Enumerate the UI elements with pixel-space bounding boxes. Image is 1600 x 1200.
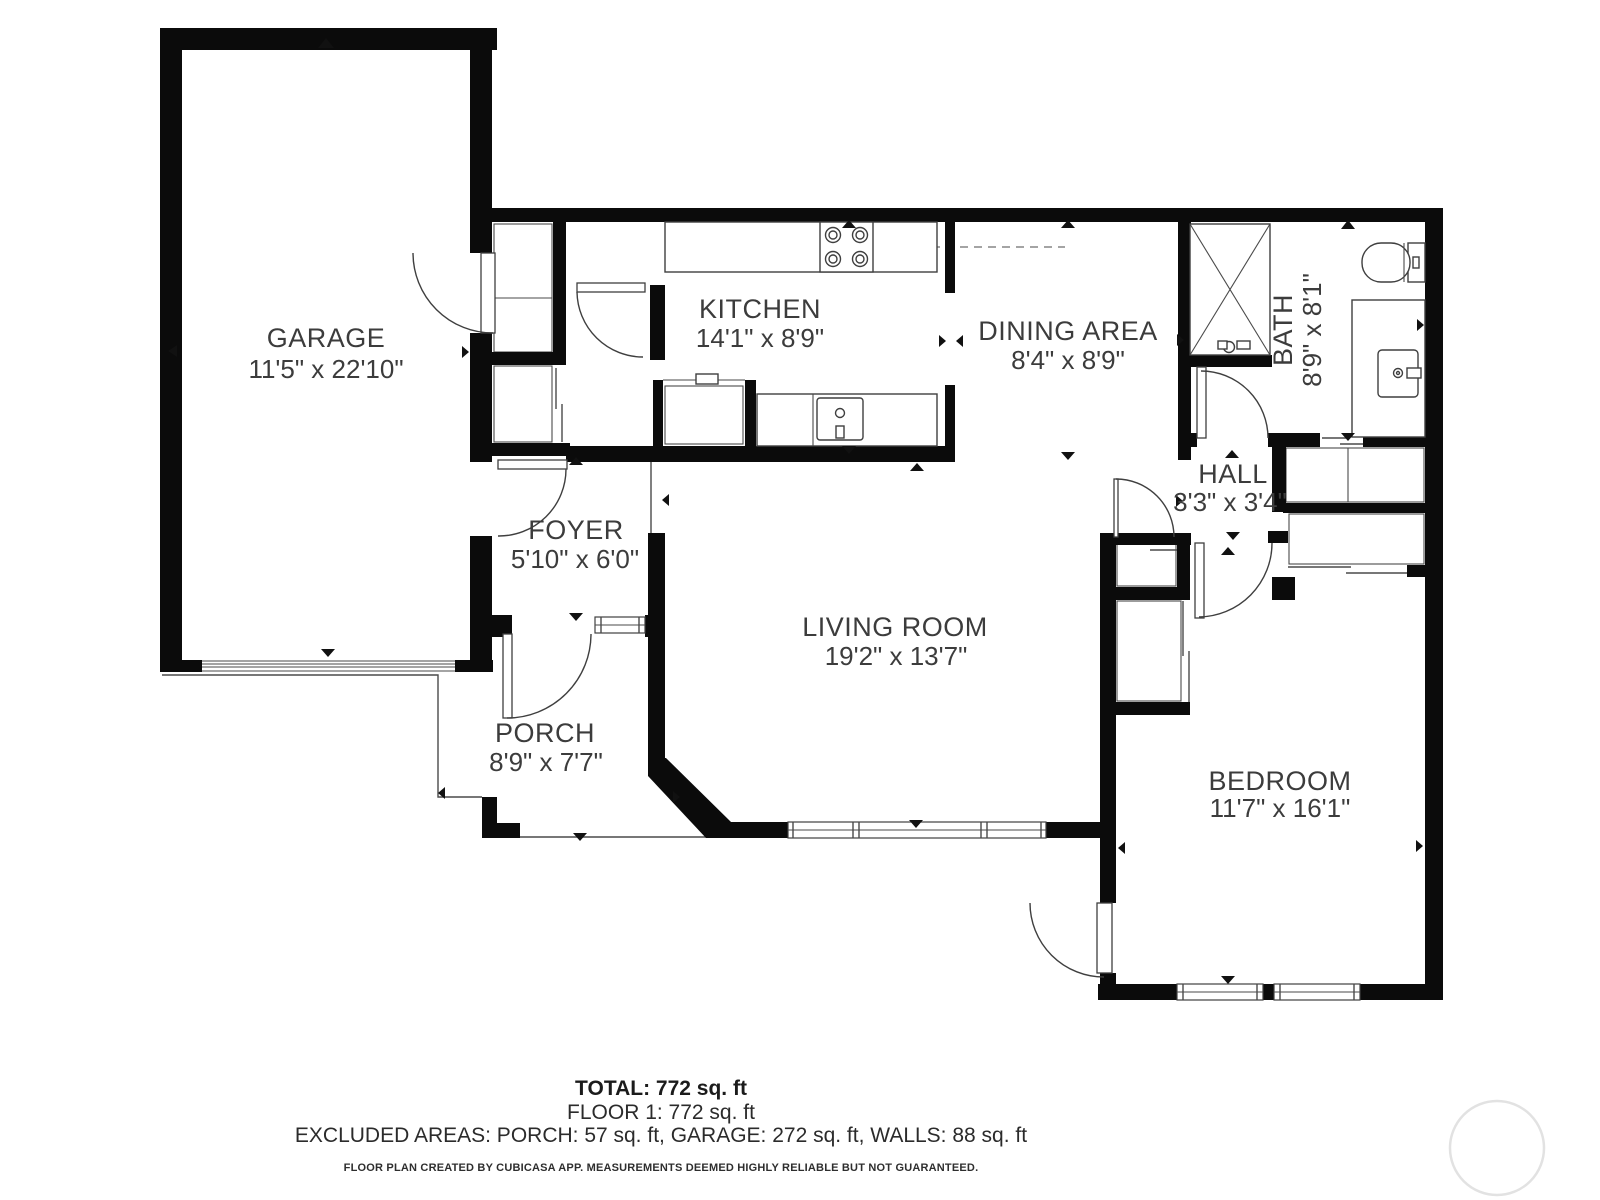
door — [1030, 903, 1112, 977]
wall-segment — [1268, 531, 1288, 543]
window — [1177, 984, 1263, 1000]
window — [1274, 984, 1360, 1000]
room-label-foyer: FOYER 5'10" x 6'0" — [511, 515, 639, 574]
room-dims: 8'9" x 8'1" — [1297, 273, 1327, 387]
room-label-porch: PORCH 8'9" x 7'7" — [489, 718, 603, 777]
room-name: DINING AREA — [978, 316, 1158, 346]
wall-segment — [1425, 208, 1443, 999]
measure-arrow — [910, 463, 924, 471]
room-dims: 8'4" x 8'9" — [1011, 345, 1125, 375]
wall-segment — [470, 443, 570, 456]
measure-arrow — [956, 335, 963, 347]
measure-arrow — [569, 613, 583, 621]
measure-arrow — [321, 649, 335, 657]
wall-segment — [482, 823, 520, 838]
wall-segment — [648, 533, 665, 758]
total-area-text: TOTAL: 772 sq. ft — [575, 1077, 747, 1100]
wall-segment — [1177, 543, 1190, 600]
wall-segment — [160, 660, 202, 672]
wall-segment — [945, 222, 955, 293]
wall-diagonal — [648, 758, 731, 838]
garage-door — [202, 660, 455, 672]
wall-segment — [1186, 355, 1272, 367]
wall-segment — [1360, 984, 1443, 1000]
watermark-circle — [1450, 1101, 1544, 1195]
wall-segment — [645, 615, 665, 637]
room-label-kitchen: KITCHEN 14'1" x 8'9" — [696, 294, 824, 353]
closet-outline — [494, 366, 552, 442]
pantry-cabinet — [663, 374, 745, 444]
measure-arrow — [1225, 450, 1239, 458]
wall-segment — [566, 446, 953, 462]
room-dims: 11'7" x 16'1" — [1210, 793, 1351, 823]
wall-segment — [650, 285, 665, 360]
floorplan-canvas: GARAGE 11'5" x 22'10" KITCHEN 14'1" x 8'… — [0, 0, 1600, 1200]
wall-segment — [490, 208, 1443, 222]
vanity-sink-icon — [1352, 300, 1425, 437]
wall-segment — [1283, 503, 1425, 513]
measure-arrow — [1221, 976, 1235, 984]
wall-segment — [470, 352, 566, 365]
excluded-areas-text: EXCLUDED AREAS: PORCH: 57 sq. ft, GARAGE… — [295, 1124, 1027, 1147]
room-label-bath: BATH 8'9" x 8'1" — [1268, 273, 1327, 387]
closet-outline — [1117, 601, 1181, 701]
room-name: FOYER — [528, 515, 624, 545]
room-name: BATH — [1268, 294, 1298, 366]
door — [503, 634, 591, 718]
measure-arrow — [1221, 547, 1235, 555]
wall-segment — [1103, 702, 1190, 715]
measure-arrow — [462, 346, 469, 358]
room-name: HALL — [1198, 459, 1268, 489]
toilet-icon — [1362, 243, 1425, 282]
wall-segment — [553, 222, 566, 355]
closet-outline — [1286, 448, 1424, 502]
door — [413, 253, 495, 333]
room-label-bedroom: BEDROOM 11'7" x 16'1" — [1208, 766, 1351, 823]
measure-arrow — [939, 335, 946, 347]
wall-segment — [945, 385, 955, 462]
measure-arrow — [1416, 840, 1423, 852]
measure-arrow — [1226, 532, 1240, 540]
room-dims: 8'9" x 7'7" — [489, 747, 603, 777]
room-name: PORCH — [495, 718, 595, 748]
window — [595, 617, 645, 633]
shower-icon — [1190, 224, 1270, 355]
floor-area-text: FLOOR 1: 772 sq. ft — [567, 1101, 755, 1124]
door — [1197, 367, 1268, 438]
room-label-hall: HALL 3'3" x 3'4" — [1173, 459, 1287, 517]
measure-arrow — [662, 494, 669, 506]
room-label-garage: GARAGE 11'5" x 22'10" — [248, 323, 403, 384]
summary-footer: TOTAL: 772 sq. ft FLOOR 1: 772 sq. ft EX… — [295, 1077, 1027, 1174]
wall-segment — [1103, 587, 1190, 600]
wall-segment — [1190, 433, 1197, 447]
room-label-living: LIVING ROOM 19'2" x 13'7" — [802, 612, 988, 671]
room-dims: 19'2" x 13'7" — [825, 641, 968, 671]
disclaimer-text: FLOOR PLAN CREATED BY CUBICASA APP. MEAS… — [344, 1162, 979, 1174]
wall-segment — [470, 536, 492, 672]
wall-segment — [1098, 984, 1177, 1000]
porch-boundary-line — [162, 675, 482, 797]
room-dims: 11'5" x 22'10" — [248, 354, 403, 384]
floorplan-page: GARAGE 11'5" x 22'10" KITCHEN 14'1" x 8'… — [0, 0, 1600, 1200]
room-name: GARAGE — [267, 323, 386, 353]
wall-segment — [470, 28, 492, 253]
wall-segment — [1407, 565, 1425, 577]
room-name: KITCHEN — [699, 294, 821, 324]
closet-outline — [1289, 514, 1424, 564]
room-name: BEDROOM — [1208, 766, 1351, 796]
door — [577, 283, 645, 357]
measure-arrow — [1118, 842, 1125, 854]
kitchen-counter — [665, 222, 937, 272]
room-name: LIVING ROOM — [802, 612, 988, 642]
wall-segment — [745, 380, 756, 446]
room-label-dining: DINING AREA 8'4" x 8'9" — [978, 316, 1158, 375]
wall-segment — [1263, 984, 1274, 1000]
stove-icon — [820, 222, 873, 272]
room-dims: 5'10" x 6'0" — [511, 544, 639, 574]
door — [1114, 479, 1174, 537]
wall-segment — [1272, 577, 1295, 600]
wall-segment — [653, 380, 663, 446]
closet-outline — [494, 224, 552, 352]
kitchen-sink-icon — [817, 398, 863, 440]
wall-segment — [722, 822, 788, 838]
room-dims: 14'1" x 8'9" — [696, 323, 824, 353]
wall-segment — [455, 660, 493, 672]
measure-arrow — [1061, 452, 1075, 460]
room-dims: 3'3" x 3'4" — [1173, 487, 1287, 517]
